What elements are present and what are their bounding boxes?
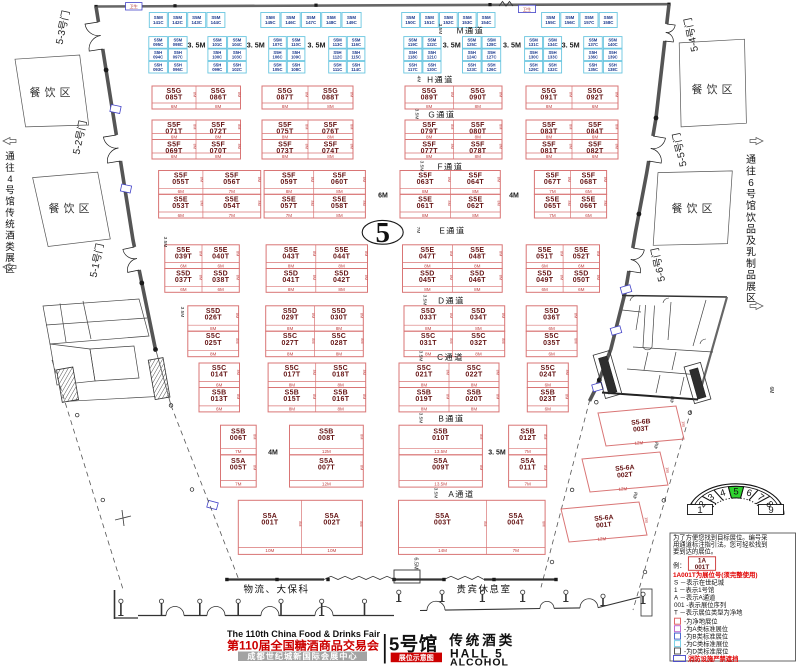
svg-text:8M: 8M <box>210 326 217 331</box>
svg-text:8M: 8M <box>210 352 217 357</box>
svg-text:-为D类标准展位: -为D类标准展位 <box>684 646 729 655</box>
svg-text:8M: 8M <box>475 104 482 109</box>
svg-text:F通道: F通道 <box>438 162 464 172</box>
svg-text:122C: 122C <box>427 42 437 47</box>
svg-text:6M: 6M <box>171 134 178 139</box>
svg-text:8M: 8M <box>364 275 368 280</box>
svg-text:058T: 058T <box>331 203 349 210</box>
svg-text:S5M: S5M <box>604 15 613 20</box>
svg-text:6M: 6M <box>218 287 225 292</box>
svg-text:1M: 1M <box>644 517 649 523</box>
svg-text:005T: 005T <box>230 465 248 472</box>
svg-text:8M: 8M <box>192 92 196 97</box>
svg-text:8M: 8M <box>310 177 314 182</box>
svg-text:023T: 023T <box>539 396 557 403</box>
svg-text:3.5M: 3.5M <box>414 109 420 120</box>
svg-text:8M: 8M <box>236 370 240 375</box>
svg-text:-为净地展位: -为净地展位 <box>684 617 718 626</box>
svg-text:-为A类标准展位: -为A类标准展位 <box>684 624 729 633</box>
svg-text:8M: 8M <box>282 154 289 159</box>
svg-text:152C: 152C <box>443 20 454 25</box>
svg-text:8M: 8M <box>603 201 607 206</box>
svg-text:144C: 144C <box>211 20 222 25</box>
svg-text:馆: 馆 <box>746 199 756 212</box>
svg-text:8M: 8M <box>192 144 196 149</box>
svg-text:039T: 039T <box>175 253 193 260</box>
svg-text:8M: 8M <box>336 213 343 218</box>
svg-text:127C: 127C <box>486 55 496 60</box>
svg-text:021T: 021T <box>415 372 433 379</box>
svg-text:S5M: S5M <box>425 15 434 20</box>
svg-text:098C: 098C <box>173 42 183 47</box>
svg-text:8M: 8M <box>336 352 343 357</box>
svg-text:3.5M: 3.5M <box>179 307 185 318</box>
svg-text:8M: 8M <box>449 275 453 280</box>
svg-text:6M: 6M <box>585 189 592 194</box>
svg-text:047T: 047T <box>419 253 437 260</box>
svg-text:往: 往 <box>5 162 15 174</box>
svg-text:8M: 8M <box>421 382 428 387</box>
svg-text:8M: 8M <box>288 263 295 268</box>
svg-text:138C: 138C <box>608 67 618 72</box>
svg-text:6M: 6M <box>216 407 223 412</box>
svg-text:8M: 8M <box>253 434 257 439</box>
svg-text:1M: 1M <box>665 467 670 473</box>
svg-text:S5M: S5M <box>173 15 182 20</box>
svg-text:8M: 8M <box>327 154 334 159</box>
svg-text:002T: 002T <box>617 471 634 479</box>
svg-text:8M: 8M <box>336 326 343 331</box>
svg-text:087T: 087T <box>276 95 294 102</box>
svg-text:004T: 004T <box>507 519 525 526</box>
svg-text:024T: 024T <box>539 372 557 379</box>
svg-text:157C: 157C <box>584 20 595 25</box>
svg-text:010T: 010T <box>432 435 450 442</box>
svg-text:086T: 086T <box>210 95 228 102</box>
svg-text:统: 统 <box>5 218 15 230</box>
svg-text:6M: 6M <box>578 287 585 292</box>
svg-text:8M: 8M <box>450 124 454 129</box>
svg-text:8M: 8M <box>286 189 293 194</box>
svg-text:8M: 8M <box>603 177 607 182</box>
svg-text:8M: 8M <box>215 134 222 139</box>
svg-text:D通道: D通道 <box>438 296 465 306</box>
svg-text:8M: 8M <box>546 154 553 159</box>
svg-text:158C: 158C <box>603 20 614 25</box>
svg-text:105C: 105C <box>272 67 282 72</box>
svg-text:8M: 8M <box>565 370 569 375</box>
svg-text:033T: 033T <box>420 314 438 321</box>
svg-text:7M: 7M <box>415 227 421 234</box>
svg-text:B通道: B通道 <box>438 414 464 424</box>
svg-text:8M: 8M <box>559 251 563 256</box>
svg-text:8M: 8M <box>215 154 222 159</box>
svg-text:154C: 154C <box>481 20 492 25</box>
svg-text:106C: 106C <box>272 55 282 60</box>
svg-text:G通道: G通道 <box>428 110 455 120</box>
svg-text:129C: 129C <box>529 67 539 72</box>
svg-text:6M: 6M <box>171 104 178 109</box>
svg-text:8M: 8M <box>257 201 261 206</box>
svg-text:6M: 6M <box>378 193 388 200</box>
svg-text:8M: 8M <box>364 251 368 256</box>
svg-text:8M: 8M <box>541 521 545 526</box>
svg-text:124C: 124C <box>467 55 477 60</box>
svg-text:8M: 8M <box>565 394 569 399</box>
svg-text:049T: 049T <box>536 277 554 284</box>
svg-text:8M: 8M <box>546 134 553 139</box>
svg-text:8M: 8M <box>312 394 316 399</box>
svg-text:8M: 8M <box>614 92 618 97</box>
svg-text:8M: 8M <box>574 313 578 318</box>
svg-text:7M: 7M <box>229 189 236 194</box>
svg-text:ALCOHOL: ALCOHOL <box>450 656 509 666</box>
svg-text:14M: 14M <box>438 548 447 553</box>
svg-text:馆: 馆 <box>5 196 15 208</box>
svg-text:3.5M: 3.5M <box>433 488 439 499</box>
svg-text:8M: 8M <box>471 407 478 412</box>
svg-text:097C: 097C <box>173 55 183 60</box>
svg-text:059T: 059T <box>280 179 298 186</box>
svg-text:012T: 012T <box>519 435 537 442</box>
svg-text:6.5M: 6.5M <box>413 557 419 570</box>
svg-text:8M: 8M <box>421 407 428 412</box>
svg-text:品: 品 <box>746 270 756 282</box>
svg-text:8M: 8M <box>560 275 564 280</box>
svg-text:001T: 001T <box>596 521 613 529</box>
svg-text:022T: 022T <box>465 372 483 379</box>
svg-text:消防设施严禁遮挡: 消防设施严禁遮挡 <box>688 654 738 663</box>
svg-text:038T: 038T <box>212 277 230 284</box>
svg-text:121C: 121C <box>427 55 437 60</box>
svg-text:117C: 117C <box>408 67 418 72</box>
svg-text:109C: 109C <box>291 55 301 60</box>
svg-text:类: 类 <box>5 241 15 253</box>
svg-text:015T: 015T <box>283 396 301 403</box>
svg-text:8M: 8M <box>359 521 363 526</box>
svg-text:7M: 7M <box>549 189 556 194</box>
svg-text:055T: 055T <box>172 179 190 186</box>
svg-text:5号馆: 5号馆 <box>389 634 438 655</box>
svg-text:8M: 8M <box>362 394 366 399</box>
svg-text:037T: 037T <box>175 277 193 284</box>
svg-text:8M: 8M <box>338 407 345 412</box>
svg-text:10M: 10M <box>265 548 274 553</box>
svg-text:8M: 8M <box>450 92 454 97</box>
svg-text:8M: 8M <box>360 338 364 343</box>
svg-text:7M: 7M <box>235 449 242 454</box>
svg-text:057T: 057T <box>280 203 298 210</box>
svg-text:餐饮区: 餐饮区 <box>30 85 75 99</box>
svg-text:035T: 035T <box>543 340 561 347</box>
svg-text:143C: 143C <box>191 20 202 25</box>
svg-text:8M: 8M <box>362 370 366 375</box>
svg-text:088T: 088T <box>322 95 340 102</box>
svg-text:6M: 6M <box>578 263 585 268</box>
svg-text:S5M: S5M <box>406 15 415 20</box>
svg-text:号: 号 <box>5 185 15 196</box>
svg-text:及: 及 <box>746 235 756 247</box>
svg-text:8M: 8M <box>338 382 345 387</box>
svg-text:T －表示展位类型为净地: T －表示展位类型为净地 <box>674 607 743 616</box>
svg-text:8M: 8M <box>198 275 202 280</box>
svg-text:The 110th China Food & Drinks: The 110th China Food & Drinks Fair <box>227 629 380 639</box>
svg-text:036T: 036T <box>543 314 561 321</box>
svg-text:132C: 132C <box>548 67 558 72</box>
svg-text:041T: 041T <box>282 277 300 284</box>
svg-text:通: 通 <box>5 152 15 163</box>
svg-text:8M: 8M <box>497 201 501 206</box>
svg-text:145C: 145C <box>265 20 276 25</box>
svg-text:8M: 8M <box>445 370 449 375</box>
svg-text:067T: 067T <box>544 179 562 186</box>
svg-text:147C: 147C <box>306 20 317 25</box>
svg-text:3.5M: 3.5M <box>162 237 168 248</box>
svg-text:6M: 6M <box>592 104 599 109</box>
svg-text:7M: 7M <box>235 481 242 486</box>
svg-text:H通道: H通道 <box>427 75 454 85</box>
svg-text:第110届全国糖酒商品交易会: 第110届全国糖酒商品交易会 <box>227 639 379 653</box>
svg-text:046T: 046T <box>469 277 487 284</box>
svg-text:区: 区 <box>746 293 756 305</box>
svg-text:8M: 8M <box>614 144 618 149</box>
svg-text:展: 展 <box>746 281 756 293</box>
svg-text:8M: 8M <box>282 104 289 109</box>
svg-text:8M: 8M <box>422 213 429 218</box>
svg-text:8M: 8M <box>236 251 240 256</box>
svg-text:S5M: S5M <box>286 15 295 20</box>
svg-text:8M: 8M <box>336 189 343 194</box>
svg-text:为了方便您找到目标展位。编号采: 为了方便您找到目标展位。编号采 <box>673 533 768 542</box>
svg-text:8M: 8M <box>450 144 454 149</box>
svg-text:026T: 026T <box>205 314 223 321</box>
svg-text:128C: 128C <box>486 42 496 47</box>
svg-text:006T: 006T <box>230 435 248 442</box>
svg-text:8M: 8M <box>425 352 432 357</box>
svg-text:餐饮区: 餐饮区 <box>692 82 737 96</box>
svg-text:8M: 8M <box>362 177 366 182</box>
svg-text:8M: 8M <box>568 144 572 149</box>
svg-text:S5M: S5M <box>192 15 201 20</box>
svg-text:8M: 8M <box>474 263 481 268</box>
svg-text:S5M: S5M <box>154 15 163 20</box>
svg-text:134C: 134C <box>548 42 558 47</box>
svg-text:8M: 8M <box>237 92 241 97</box>
svg-text:104C: 104C <box>232 42 242 47</box>
svg-text:S －表示在世纪城: S －表示在世纪城 <box>674 578 725 587</box>
svg-text:148C: 148C <box>326 20 337 25</box>
svg-text:8M: 8M <box>426 134 433 139</box>
svg-text:107C: 107C <box>272 42 282 47</box>
svg-text:8M: 8M <box>338 263 345 268</box>
svg-text:8M: 8M <box>499 251 503 256</box>
svg-text:8M: 8M <box>310 201 314 206</box>
svg-text:4M: 4M <box>416 76 422 83</box>
svg-text:8M: 8M <box>543 434 547 439</box>
svg-text:往: 往 <box>746 165 756 178</box>
svg-text:001T: 001T <box>261 519 279 526</box>
svg-text:027T: 027T <box>282 340 300 347</box>
svg-text:119C: 119C <box>408 42 418 47</box>
svg-text:155C: 155C <box>545 20 556 25</box>
svg-text:8M: 8M <box>198 251 202 256</box>
svg-text:物流、大保科: 物流、大保科 <box>243 584 309 596</box>
svg-text:042T: 042T <box>333 277 351 284</box>
svg-text:8M: 8M <box>449 251 453 256</box>
svg-text:112C: 112C <box>333 55 343 60</box>
svg-text:8M: 8M <box>475 134 482 139</box>
svg-text:S5M: S5M <box>347 15 356 20</box>
svg-text:056T: 056T <box>223 179 241 186</box>
svg-text:8M: 8M <box>498 144 502 149</box>
svg-text:153C: 153C <box>462 20 473 25</box>
svg-text:111C: 111C <box>333 67 343 72</box>
svg-text:卫生: 卫生 <box>523 6 531 12</box>
svg-text:8M: 8M <box>546 104 553 109</box>
svg-text:8M: 8M <box>501 338 505 343</box>
svg-text:6M: 6M <box>545 382 552 387</box>
svg-text:133C: 133C <box>548 55 558 60</box>
svg-text:13.5M: 13.5M <box>434 449 447 454</box>
svg-text:8M: 8M <box>474 287 481 292</box>
svg-text:6M: 6M <box>549 326 556 331</box>
svg-text:028T: 028T <box>330 340 348 347</box>
svg-text:5: 5 <box>375 217 390 249</box>
svg-text:8M: 8M <box>447 201 451 206</box>
svg-text:123C: 123C <box>467 67 477 72</box>
svg-text:8M: 8M <box>289 382 296 387</box>
svg-text:酒: 酒 <box>5 231 15 242</box>
svg-text:-为C类标准展位: -为C类标准展位 <box>684 639 729 648</box>
svg-text:8M: 8M <box>422 189 429 194</box>
svg-text:149C: 149C <box>346 20 357 25</box>
svg-text:136C: 136C <box>588 55 598 60</box>
svg-text:8M: 8M <box>596 275 600 280</box>
svg-text:156C: 156C <box>565 20 576 25</box>
svg-text:115C: 115C <box>351 55 361 60</box>
svg-text:139C: 139C <box>608 55 618 60</box>
svg-text:8M: 8M <box>447 177 451 182</box>
svg-text:7M: 7M <box>549 213 556 218</box>
svg-text:8M: 8M <box>199 201 203 206</box>
svg-text:001 -表示展位序列: 001 -表示展位序列 <box>674 600 726 609</box>
svg-text:3.5M: 3.5M <box>422 295 428 306</box>
svg-text:8M: 8M <box>304 92 308 97</box>
svg-text:009T: 009T <box>432 465 450 472</box>
svg-text:8M: 8M <box>614 124 618 129</box>
svg-text:8M: 8M <box>426 104 433 109</box>
svg-text:3. 5M: 3. 5M <box>443 41 461 50</box>
svg-text:017T: 017T <box>283 372 301 379</box>
svg-text:092T: 092T <box>586 95 604 102</box>
svg-text:118C: 118C <box>408 55 418 60</box>
svg-text:品: 品 <box>746 223 756 235</box>
svg-text:6M: 6M <box>178 213 185 218</box>
svg-text:062T: 062T <box>467 203 485 210</box>
svg-text:6M: 6M <box>218 263 225 268</box>
svg-text:8M: 8M <box>501 313 505 318</box>
svg-text:8M: 8M <box>362 201 366 206</box>
svg-text:6M: 6M <box>180 263 187 268</box>
svg-text:8M: 8M <box>479 434 483 439</box>
svg-text:8M: 8M <box>475 154 482 159</box>
svg-text:3. 5M: 3. 5M <box>562 41 580 50</box>
svg-text:通: 通 <box>746 154 756 166</box>
svg-text:8M: 8M <box>596 251 600 256</box>
svg-text:卫生: 卫生 <box>130 3 138 9</box>
svg-text:饮: 饮 <box>746 211 756 224</box>
svg-text:8M: 8M <box>475 352 482 357</box>
svg-text:6M: 6M <box>768 387 774 394</box>
svg-text:展: 展 <box>5 253 15 264</box>
svg-text:8M: 8M <box>304 144 308 149</box>
svg-text:C通道: C通道 <box>437 352 464 362</box>
svg-text:029T: 029T <box>282 314 300 321</box>
svg-text:113C: 113C <box>333 42 343 47</box>
svg-text:A通道: A通道 <box>448 489 474 499</box>
svg-text:110C: 110C <box>291 42 301 47</box>
svg-text:8M: 8M <box>235 338 239 343</box>
svg-text:S5M: S5M <box>306 15 315 20</box>
svg-text:090T: 090T <box>469 95 487 102</box>
svg-text:8M: 8M <box>298 521 302 526</box>
svg-text:045T: 045T <box>419 277 437 284</box>
svg-text:141C: 141C <box>153 20 164 25</box>
svg-text:8M: 8M <box>499 275 503 280</box>
svg-text:12M: 12M <box>597 536 606 542</box>
svg-text:8M: 8M <box>327 134 334 139</box>
svg-text:8M: 8M <box>495 394 499 399</box>
svg-text:8M: 8M <box>543 465 547 470</box>
svg-text:3. 5M: 3. 5M <box>488 450 506 457</box>
svg-text:085T: 085T <box>165 95 183 102</box>
svg-text:051T: 051T <box>536 253 554 260</box>
svg-text:-为B类标准展位: -为B类标准展位 <box>684 632 729 641</box>
svg-text:12M: 12M <box>634 440 643 446</box>
svg-text:053T: 053T <box>172 203 190 210</box>
svg-text:8M: 8M <box>475 326 482 331</box>
svg-text:094C: 094C <box>153 55 163 60</box>
svg-text:8M: 8M <box>312 370 316 375</box>
svg-text:6M: 6M <box>549 352 556 357</box>
svg-text:8M: 8M <box>479 465 483 470</box>
svg-text:8M: 8M <box>567 177 571 182</box>
svg-text:8M: 8M <box>497 177 501 182</box>
svg-text:8M: 8M <box>304 124 308 129</box>
svg-text:8M: 8M <box>360 434 364 439</box>
svg-text:S5M: S5M <box>266 15 275 20</box>
svg-text:102C: 102C <box>232 67 242 72</box>
svg-text:S5M: S5M <box>463 15 472 20</box>
svg-text:025T: 025T <box>205 340 223 347</box>
svg-text:120C: 120C <box>427 67 437 72</box>
svg-text:013T: 013T <box>211 396 229 403</box>
svg-text:8M: 8M <box>192 124 196 129</box>
svg-text:3.5M: 3.5M <box>418 351 424 362</box>
svg-text:116C: 116C <box>351 42 361 47</box>
svg-text:8M: 8M <box>360 313 364 318</box>
svg-text:10M: 10M <box>327 548 336 553</box>
svg-text:151C: 151C <box>424 20 435 25</box>
svg-text:030T: 030T <box>330 314 348 321</box>
svg-text:13.5M: 13.5M <box>434 481 447 486</box>
svg-text:8M: 8M <box>327 104 334 109</box>
svg-text:050T: 050T <box>573 277 591 284</box>
svg-text:020T: 020T <box>465 396 483 403</box>
svg-text:12M: 12M <box>618 486 627 492</box>
svg-text:8M: 8M <box>288 287 295 292</box>
svg-text:126C: 126C <box>486 67 496 72</box>
